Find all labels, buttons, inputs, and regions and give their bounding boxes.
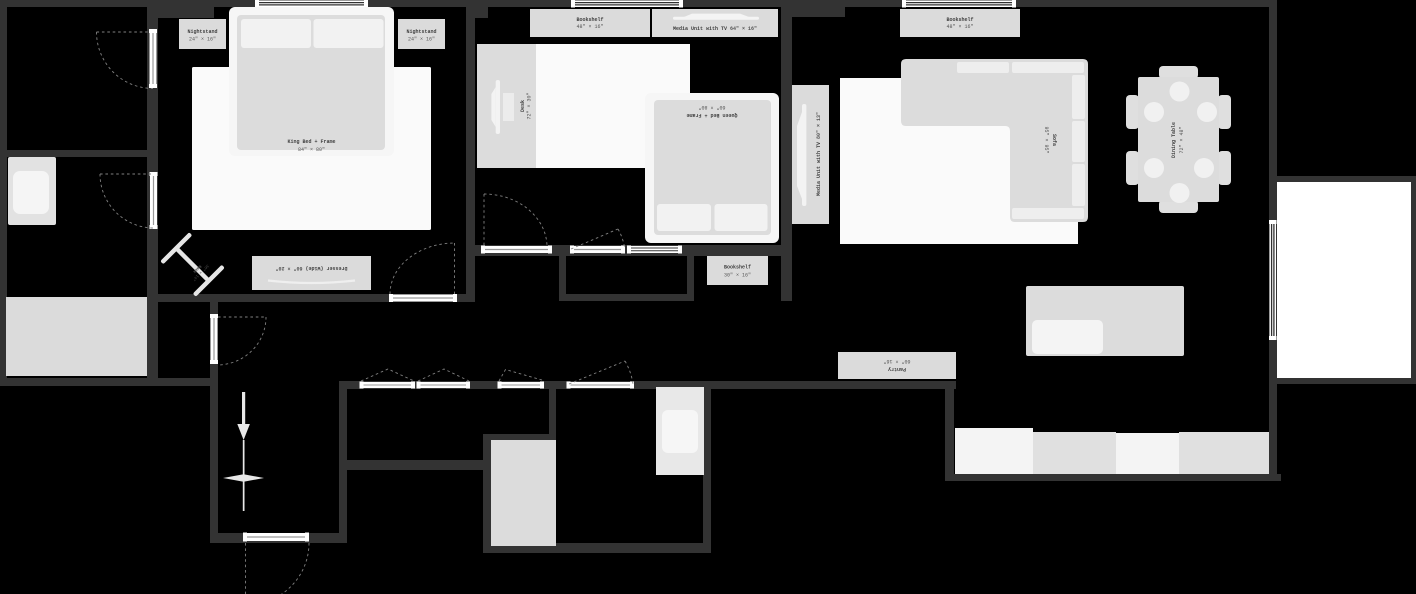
svg-text:Nightstand: Nightstand [406, 29, 436, 35]
svg-text:48″ × 16″: 48″ × 16″ [946, 24, 973, 30]
svg-text:24″ × 16″: 24″ × 16″ [189, 37, 216, 43]
svg-text:Pantry: Pantry [888, 366, 906, 372]
svg-text:Bookshelf: Bookshelf [946, 17, 973, 23]
svg-text:Bookshelf: Bookshelf [576, 17, 603, 23]
svg-text:Bookshelf: Bookshelf [724, 265, 751, 271]
svg-text:60″ × 16″: 60″ × 16″ [883, 358, 910, 364]
svg-text:Dresser (Wide) 60″ × 20″: Dresser (Wide) 60″ × 20″ [275, 265, 347, 271]
svg-text:King Bed + Frame: King Bed + Frame [287, 139, 335, 145]
svg-text:72″ × 48″: 72″ × 48″ [1179, 126, 1185, 153]
svg-text:Desk: Desk [520, 100, 526, 112]
svg-text:Dining Table: Dining Table [1171, 122, 1177, 158]
svg-text:Sofa: Sofa [1051, 134, 1057, 146]
svg-text:48″ × 16″: 48″ × 16″ [576, 24, 603, 30]
svg-text:60″ × 80″: 60″ × 80″ [698, 104, 725, 110]
svg-text:95″ × 95″: 95″ × 95″ [1043, 126, 1049, 153]
svg-text:Nightstand: Nightstand [187, 29, 217, 35]
svg-text:72″ × 30″: 72″ × 30″ [527, 92, 533, 119]
svg-text:Media Unit with TV 64″ × 16″: Media Unit with TV 64″ × 16″ [673, 26, 757, 32]
svg-text:Media Unit with TV 80″ × 13″: Media Unit with TV 80″ × 13″ [816, 112, 822, 196]
svg-text:Queen Bed + Frame: Queen Bed + Frame [686, 112, 737, 118]
svg-text:84″ × 80″: 84″ × 80″ [298, 147, 325, 153]
svg-text:24″ × 16″: 24″ × 16″ [408, 37, 435, 43]
svg-text:30″ × 16″: 30″ × 16″ [724, 273, 751, 279]
